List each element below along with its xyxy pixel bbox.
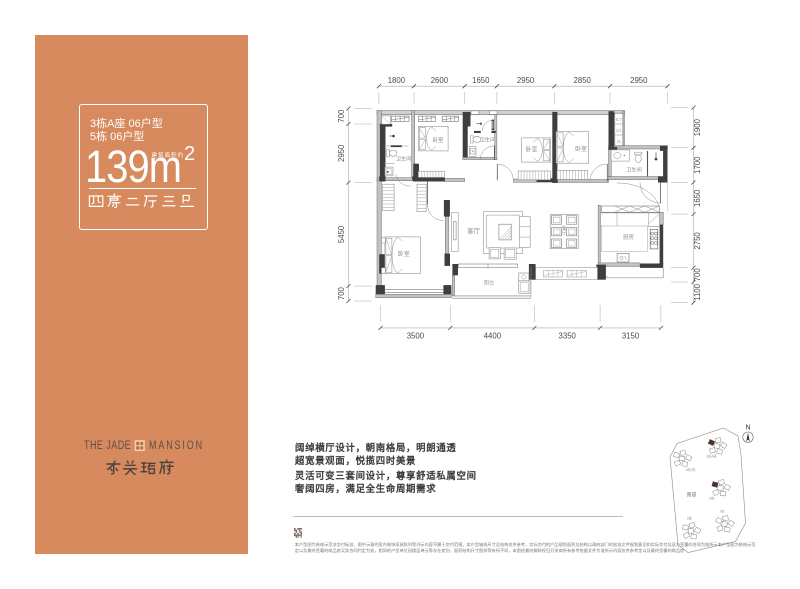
svg-text:3栋A座: 3栋A座 xyxy=(706,454,717,459)
svg-text:N: N xyxy=(745,425,750,432)
svg-text:7栋: 7栋 xyxy=(720,509,726,514)
svg-text:1栋2栋: 1栋2栋 xyxy=(686,467,697,472)
svg-text:南璟: 南璟 xyxy=(686,492,696,499)
svg-text:8栋: 8栋 xyxy=(687,516,693,521)
svg-text:5栋: 5栋 xyxy=(710,496,716,501)
